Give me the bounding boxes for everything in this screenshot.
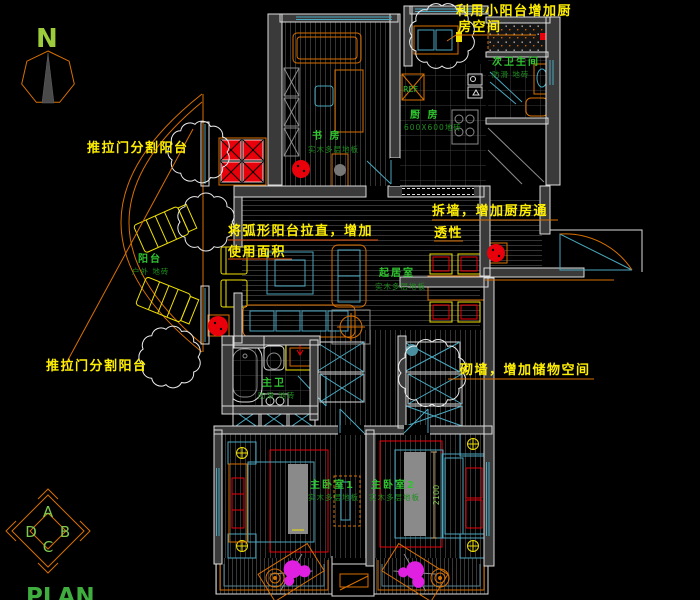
balcony-label: 阳台 xyxy=(138,252,162,265)
annotation-demolish-1: 拆墙，增加厨房通 xyxy=(432,203,548,219)
balcony-doors xyxy=(201,122,209,344)
revision-cloud xyxy=(178,193,234,251)
annotation-sliding-door-bottom: 推拉门分割阳台 xyxy=(46,358,148,374)
second-bath-floor-label: 防滑 地砖 xyxy=(492,69,529,79)
sink-basin xyxy=(436,30,452,50)
bay1-floor xyxy=(216,558,332,594)
elevation-c: C xyxy=(43,538,53,556)
living-floor-label: 实木多层地板 xyxy=(375,281,426,291)
bedroom1-floor-label: 实木多层地板 xyxy=(308,492,359,502)
annotation-use-balcony-1: 利用小阳台增加厨 xyxy=(456,3,572,19)
master-bath-floor-label: 防滑 地砖 xyxy=(258,390,295,400)
lounge-chair xyxy=(133,203,197,254)
study-floor-label: 实木多层地板 xyxy=(308,144,359,154)
floor-finishes xyxy=(216,22,546,594)
planter-table xyxy=(219,138,266,185)
plan-title: PLAN xyxy=(26,584,95,600)
compass-needle xyxy=(42,53,54,103)
annotation-use-balcony-2: 房空间 xyxy=(458,19,502,35)
elevation-d: D xyxy=(25,523,37,541)
door-leaf[interactable] xyxy=(560,234,632,270)
cad-floor-plan: 2100 xyxy=(0,0,700,600)
annotation-demolish-2: 透性 xyxy=(434,225,463,241)
bed-runner xyxy=(288,464,308,534)
north-compass: N xyxy=(22,24,75,103)
entry-corridor xyxy=(488,128,544,184)
living-label: 起居室 xyxy=(378,266,415,279)
annotation-sliding-door-top: 推拉门分割阳台 xyxy=(87,140,189,156)
elevation-marker: A B C D xyxy=(6,489,90,573)
plan-drawing: 2100 xyxy=(0,0,700,600)
annotation-straighten-2: 使用面积 xyxy=(227,244,286,260)
study-label: 书 房 xyxy=(312,129,341,142)
revision-cloud xyxy=(139,326,200,388)
kitchen-floor-label: 600X600地砖 xyxy=(404,122,462,132)
bedroom2-floor-label: 实木多层地板 xyxy=(369,492,420,502)
elevation-b: B xyxy=(60,523,70,541)
bedroom2-label: 主卧室2 xyxy=(371,478,416,491)
fridge-label: REF xyxy=(403,85,419,94)
elevation-a: A xyxy=(43,503,54,521)
washing-machine xyxy=(418,30,434,50)
master-bath-label: 主卫 xyxy=(262,376,286,389)
annotation-build-wall: 砌墙，增加储物空间 xyxy=(459,362,591,378)
dimension-text: 2100 xyxy=(432,485,441,505)
annotation-straighten-1: 将弧形阳台拉直，增加 xyxy=(228,223,373,239)
second-bath-label: 次卫生间 xyxy=(492,55,540,68)
balcony-floor-label: 户外 地砖 xyxy=(132,266,169,276)
lounge-chair xyxy=(135,277,199,326)
bedroom1-label: 主卧室1 xyxy=(310,478,355,491)
kitchen-label: 厨 房 xyxy=(410,108,439,121)
north-label: N xyxy=(36,24,58,54)
